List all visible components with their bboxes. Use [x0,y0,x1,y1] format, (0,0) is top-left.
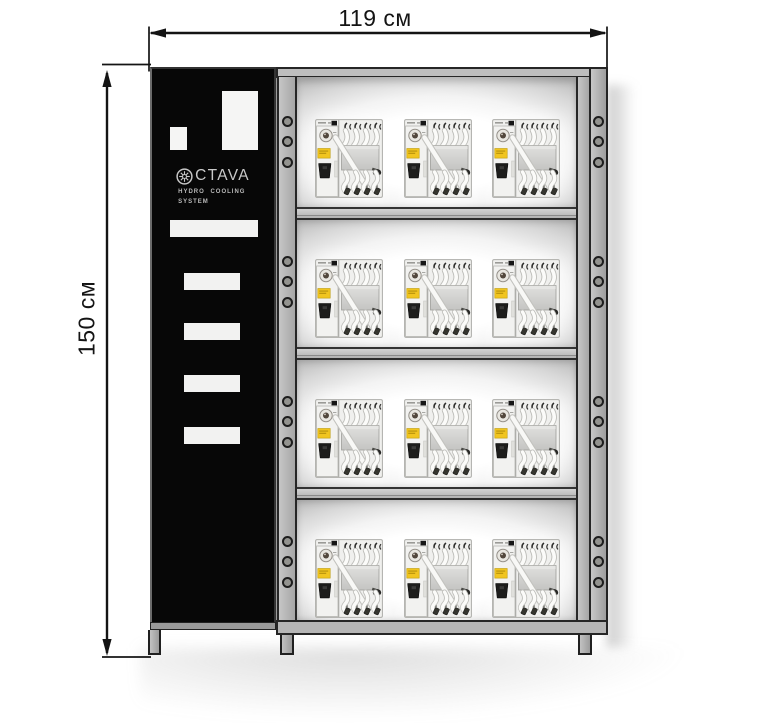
hydro-cooling-unit [404,537,472,618]
cabinet-side-shadow [607,85,635,647]
mounting-hole [593,396,604,407]
mounting-hole [282,116,293,127]
mounting-hole [282,256,293,267]
mounting-hole [593,416,604,427]
cabinet-foot-right [578,635,592,655]
panel-base-strip [150,622,276,630]
height-dimension-label: 150 см [74,276,101,362]
shelf-divider [297,207,576,220]
switch-cutout [170,127,187,150]
hydro-cooling-unit [315,537,383,618]
hydro-cooling-unit [315,257,383,338]
mounting-hole [593,136,604,147]
hydro-cooling-unit [492,257,560,338]
hydro-cooling-unit [404,257,472,338]
mounting-hole [282,536,293,547]
brand-logo: CTAVA HYDRO COOLING SYSTEM [152,167,274,207]
mounting-hole [593,256,604,267]
logo-subtitle-line2: SYSTEM [178,198,245,208]
hydro-cooling-unit [492,397,560,478]
mounting-hole [282,437,293,448]
mounting-hole [593,276,604,287]
mounting-hole [282,556,293,567]
cabinet-foot-middle [280,635,294,655]
hydro-cooling-unit [404,397,472,478]
mounting-hole [593,297,604,308]
mounting-hole [593,536,604,547]
vent-slot [184,375,240,392]
width-dimension-label: 119 см [270,5,480,32]
hydro-cooling-unit [492,537,560,618]
mounting-hole [282,297,293,308]
hydro-cooling-unit [315,117,383,198]
mounting-hole [593,556,604,567]
technical-diagram: 119 см 150 см CT [0,0,757,723]
cabinet-foot-left [148,630,161,655]
vent-slot [184,273,240,290]
shelf-divider [297,487,576,500]
logo-letters: CTAVA [195,167,250,185]
mounting-hole [282,276,293,287]
rack-right-rail [589,67,608,635]
cabinet-floor-shadow [140,648,680,718]
hydro-cooling-unit [404,117,472,198]
vent-slot [184,323,240,340]
rack-bottom-bar [276,620,608,635]
logo-subtitle-line1: HYDRO COOLING [178,188,245,198]
mounting-hole [593,437,604,448]
mounting-hole [282,577,293,588]
hydro-cooling-unit [315,397,383,478]
mounting-hole [593,157,604,168]
mounting-hole [282,157,293,168]
mounting-hole [593,577,604,588]
mounting-hole [593,116,604,127]
mounting-hole [282,396,293,407]
mounting-hole [282,136,293,147]
gear-ring-icon [176,168,193,185]
rack-right-post [576,77,591,621]
shelf-divider [297,347,576,360]
vent-slot [184,427,240,444]
mounting-hole [282,416,293,427]
hydro-cooling-control-panel: CTAVA HYDRO COOLING SYSTEM [150,67,276,630]
display-cutout [222,91,258,150]
hydro-cooling-unit [492,117,560,198]
shelf-rack [276,67,608,635]
vent-slot-wide [170,220,258,237]
